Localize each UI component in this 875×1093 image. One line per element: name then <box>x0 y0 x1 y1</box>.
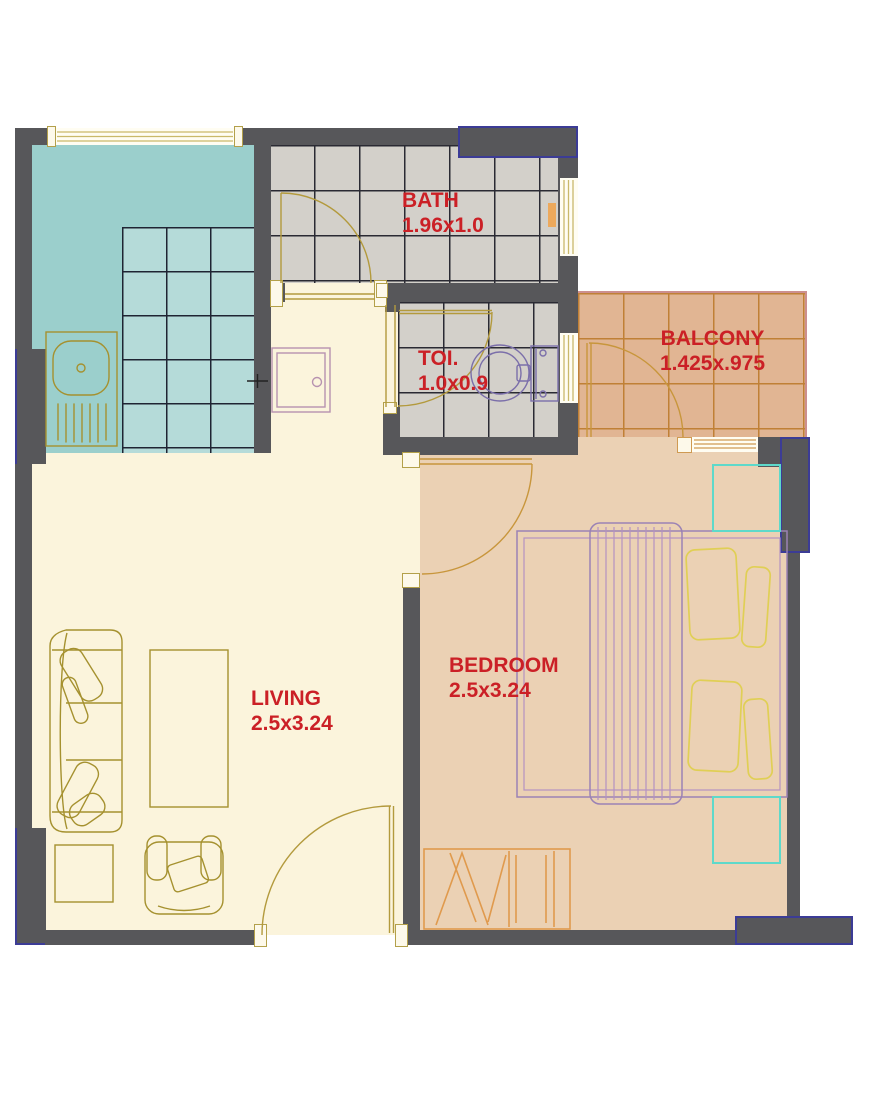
entrance-door-cap-left <box>254 924 267 947</box>
wall-balcony-south <box>758 437 780 467</box>
bath-door-cap-left <box>270 280 283 307</box>
wall-bedroom-west <box>403 580 420 930</box>
living-dims: 2.5x3.24 <box>251 711 333 736</box>
toi-door-cap-top <box>376 283 388 298</box>
wall-left-pier-upper <box>15 349 46 464</box>
wall-corner-bottom-left <box>15 923 45 945</box>
duct-shaft-top-right <box>458 126 578 158</box>
bedroom-dims: 2.5x3.24 <box>449 678 559 703</box>
toilet-dims: 1.0x0.9 <box>418 371 488 396</box>
wall-bottom-left <box>15 930 262 945</box>
bath-window <box>560 178 578 256</box>
column-right <box>780 437 810 553</box>
bath-label: BATH 1.96x1.0 <box>402 188 484 238</box>
balcony-parapet-right <box>805 291 807 437</box>
balcony-label: BALCONY 1.425x.975 <box>645 326 780 376</box>
toi-door-cap-bottom <box>383 402 397 414</box>
bath-dims: 1.96x1.0 <box>402 213 484 238</box>
balcony-parapet-top <box>578 291 807 293</box>
kitchen-window-cap-right <box>234 126 243 147</box>
wall-toi-south <box>393 437 578 455</box>
toilet-name: TOI. <box>418 346 488 371</box>
floor-plan: BATH 1.96x1.0 TOI. 1.0x0.9 BALCONY 1.425… <box>0 0 875 1093</box>
kitchen-window-cap-left <box>47 126 56 147</box>
living-label: LIVING 2.5x3.24 <box>251 686 333 736</box>
entrance-door-cap-right <box>395 924 408 947</box>
balcony-dims: 1.425x.975 <box>645 351 780 376</box>
wall-bath-south-right <box>387 283 578 302</box>
balcony-bedroom-window <box>692 437 758 452</box>
wall-bedroom-east <box>787 553 800 945</box>
ledge-bottom-right <box>735 916 853 945</box>
bedroom-label: BEDROOM 2.5x3.24 <box>449 653 559 703</box>
wall-left <box>15 128 32 945</box>
bath-name: BATH <box>402 188 484 213</box>
balcony-name: BALCONY <box>645 326 780 351</box>
kitchen-window <box>55 128 235 145</box>
toilet-label: TOI. 1.0x0.9 <box>418 346 488 396</box>
bedroom-door-cap-bottom <box>402 573 420 588</box>
balcony-door-frame <box>677 437 692 453</box>
bedroom-door-cap-top <box>402 452 420 468</box>
living-name: LIVING <box>251 686 333 711</box>
kitchen-tiled-area <box>122 227 254 453</box>
bedroom-name: BEDROOM <box>449 653 559 678</box>
toilet-window <box>560 333 578 403</box>
